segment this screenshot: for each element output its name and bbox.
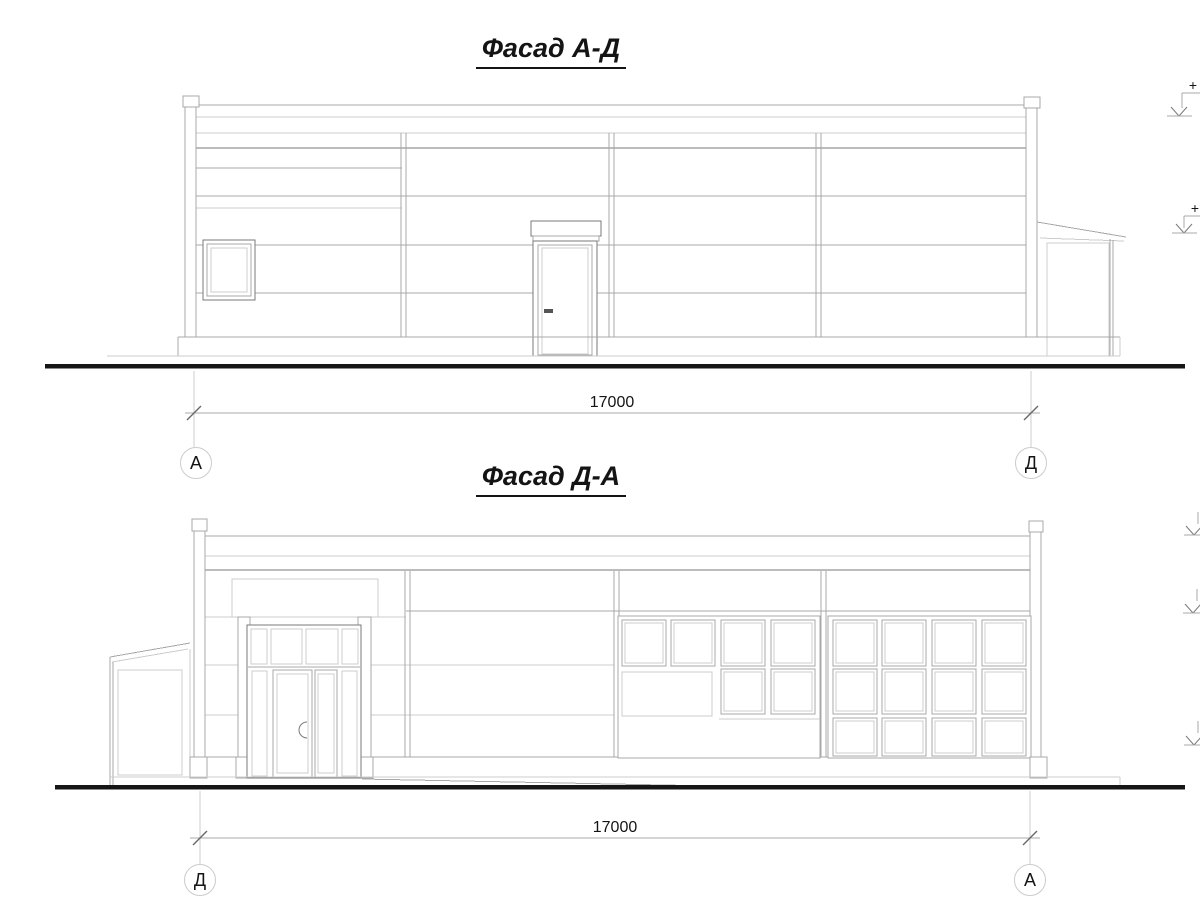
facade-2-axis-left-label: Д: [194, 870, 206, 890]
facade-1-axis-right-label: Д: [1025, 453, 1037, 473]
facade-2-ground-line: [55, 785, 1185, 790]
blank-panel: [622, 672, 712, 716]
facade-2-elevation-marks: [1183, 512, 1200, 745]
door-leaf: [273, 670, 312, 777]
facade-2-window-band-left: [618, 616, 820, 758]
facade-1-axis-left-label: А: [190, 453, 202, 473]
elevation-mark-icon: [1184, 721, 1200, 745]
facade-2-drawing: [55, 519, 1185, 790]
elevation-mark-icon: +: [1167, 77, 1200, 116]
sidelight: [342, 671, 357, 776]
elevation-mark-icon: [1183, 589, 1200, 613]
facade-1-corner-columns: [183, 96, 1040, 337]
facade-2-side-annex: [110, 643, 190, 786]
elevation-drawing-sheet: Фасад А-Д Фасад Д-А: [0, 0, 1200, 900]
facade-1-ground-line: [45, 364, 1185, 369]
drawing-linework: 17000 А Д + +: [0, 0, 1200, 900]
elevation-mark-icon: +: [1172, 200, 1200, 233]
signboard: [232, 579, 378, 617]
entrance-ramp-line: [362, 779, 713, 786]
facade-1-side-annex: [1037, 222, 1126, 356]
facade-2-dimension: 17000 Д А: [185, 791, 1046, 896]
facade-1-entrance-door: [531, 221, 601, 356]
facade-1-dimension-value: 17000: [590, 394, 635, 411]
door-canopy: [531, 221, 601, 236]
facade-1-panel-joints: [401, 133, 821, 337]
svg-text:+: +: [1189, 77, 1197, 93]
facade-2-dimension-value: 17000: [593, 819, 638, 836]
facade-2-axis-right-label: А: [1024, 870, 1036, 890]
facade-2-window-band-right: [828, 616, 1031, 758]
facade-2-entrance-portal: [232, 579, 378, 778]
elevation-mark-icon: [1184, 512, 1200, 535]
facade-1-dimension: 17000 А Д: [181, 371, 1047, 479]
facade-1-window: [203, 240, 255, 300]
facade-1-panel-lines: [196, 105, 1026, 293]
svg-text:+: +: [1191, 200, 1199, 216]
facade-1-plinth: [107, 337, 1120, 356]
facade-1-elevation-marks: + +: [1167, 77, 1200, 233]
door-handle: [544, 309, 553, 313]
facade-1-drawing: [45, 96, 1185, 369]
sidelight: [252, 671, 267, 776]
